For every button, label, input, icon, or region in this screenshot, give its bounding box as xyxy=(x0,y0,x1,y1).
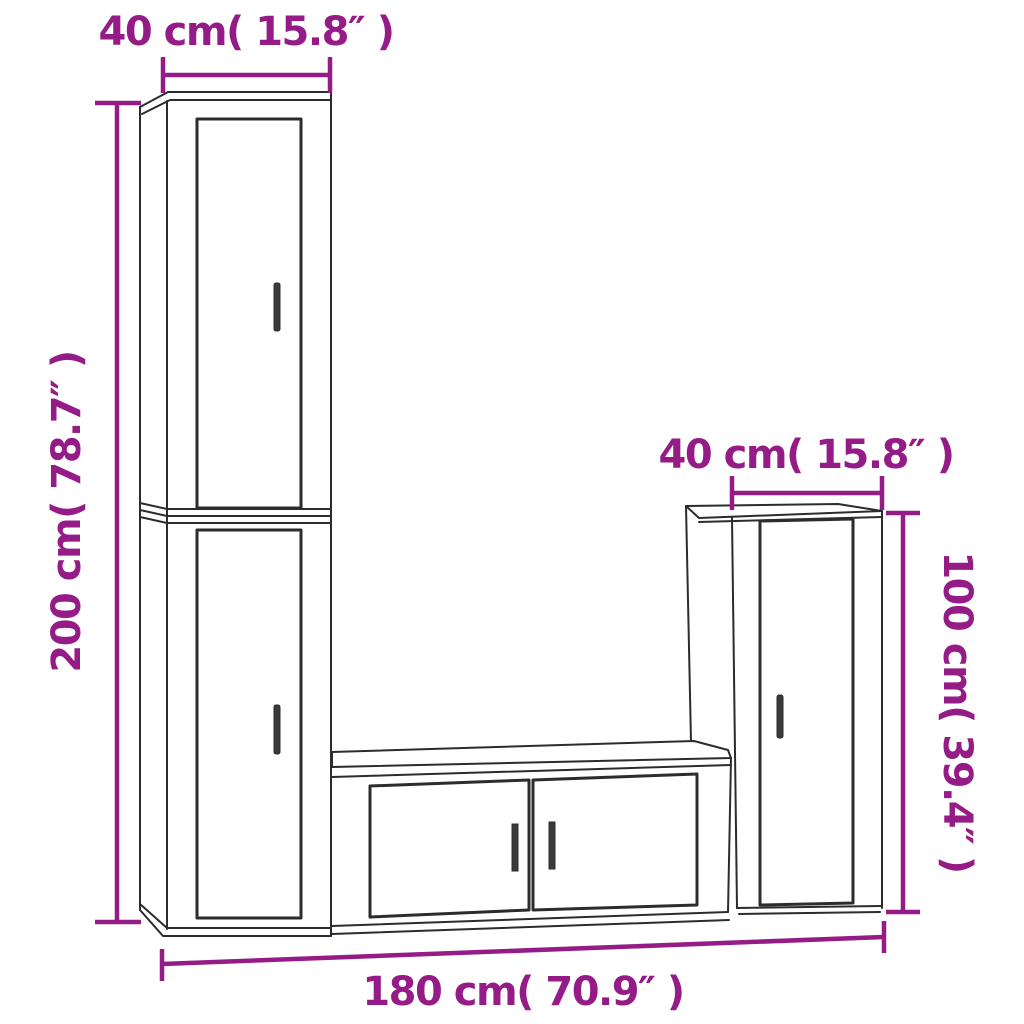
product-dimension-diagram: 40 cm( 15.8″ ) 200 cm( 78.7″ ) 40 cm( 15… xyxy=(0,0,1024,1024)
left-cabinet-column xyxy=(140,92,331,937)
lower-cabinet-door xyxy=(197,530,301,918)
bench-left-door-handle xyxy=(512,824,518,871)
dim-right-height-label: 100 cm( 39.4″ ) xyxy=(934,551,980,872)
dimension-diagram-svg: 40 cm( 15.8″ ) 200 cm( 78.7″ ) 40 cm( 15… xyxy=(0,0,1024,1024)
dim-bottom-width-label: 180 cm( 70.9″ ) xyxy=(362,969,683,1015)
dim-top-width-label: 40 cm( 15.8″ ) xyxy=(99,9,394,55)
right-cabinet-door-handle xyxy=(777,695,783,738)
upper-cabinet-door xyxy=(197,119,301,508)
tv-bench xyxy=(332,741,731,934)
dim-top-width-line xyxy=(163,57,330,93)
right-cabinet-door xyxy=(760,519,853,905)
dim-left-height-label: 200 cm( 78.7″ ) xyxy=(44,351,90,672)
upper-cabinet-door-handle xyxy=(274,283,280,331)
bench-right-door-handle xyxy=(549,822,555,869)
lower-cabinet-door-handle xyxy=(274,705,280,754)
dim-left-height-line xyxy=(95,103,141,922)
bench-left-door xyxy=(370,780,529,917)
dim-right-width-label: 40 cm( 15.8″ ) xyxy=(659,432,954,478)
bench-right-door xyxy=(533,774,697,910)
dim-right-height-line xyxy=(886,513,920,912)
